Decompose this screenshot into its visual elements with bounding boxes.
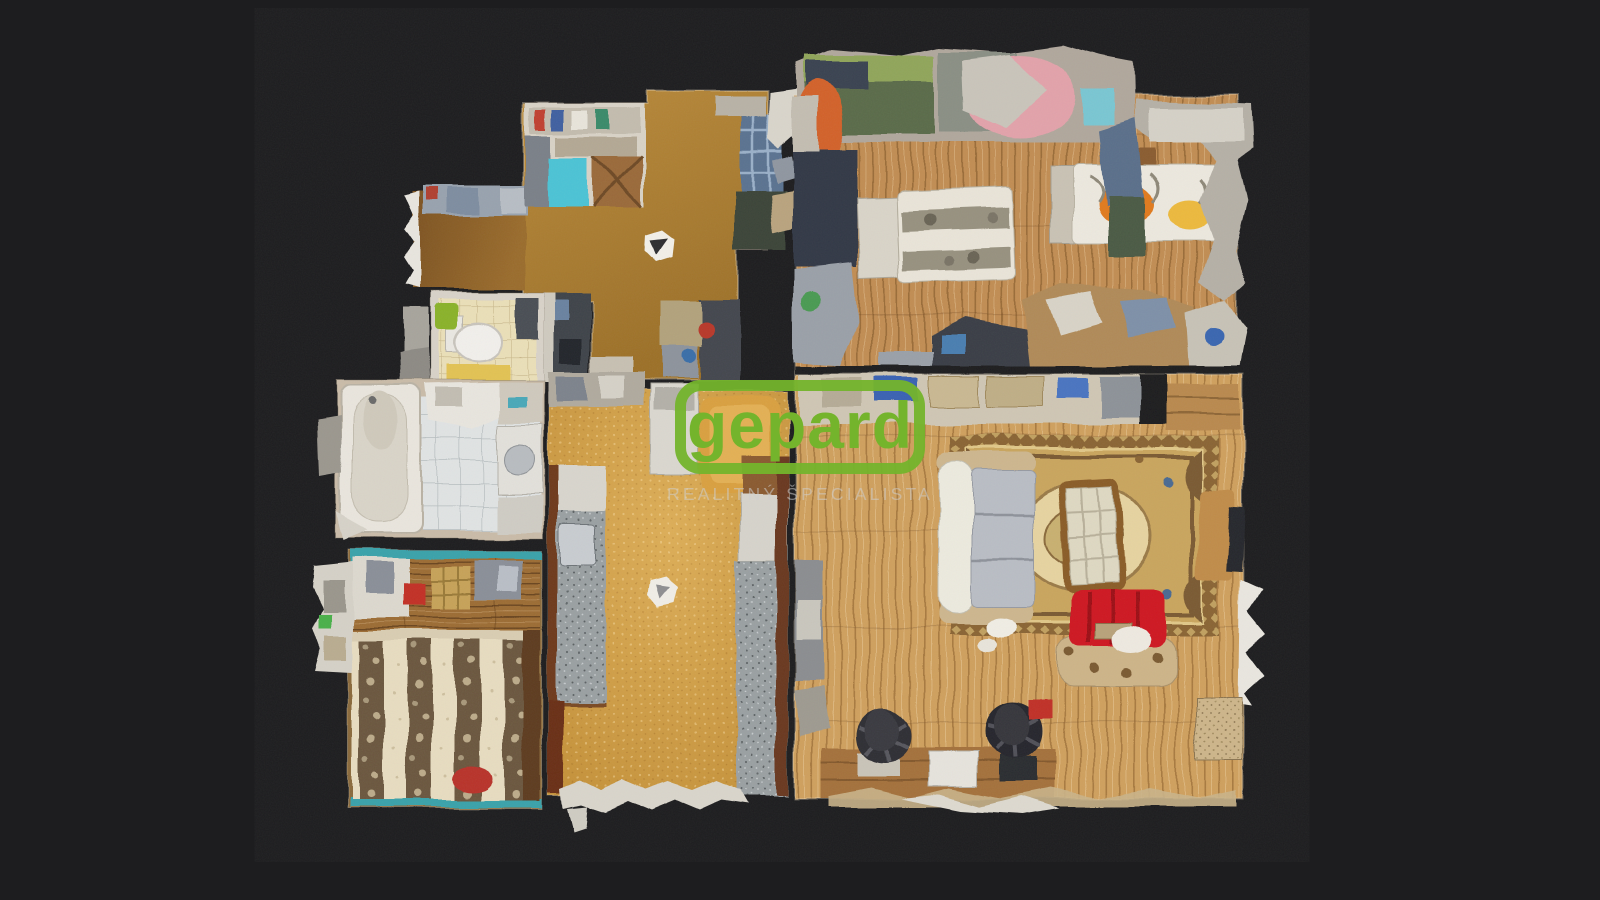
scan-noise (290, 40, 1270, 830)
dollhouse-scan[interactable] (0, 0, 1600, 900)
tour-viewer-canvas[interactable]: gepard REALITNÝ ŠPECIALISTA (0, 0, 1600, 900)
